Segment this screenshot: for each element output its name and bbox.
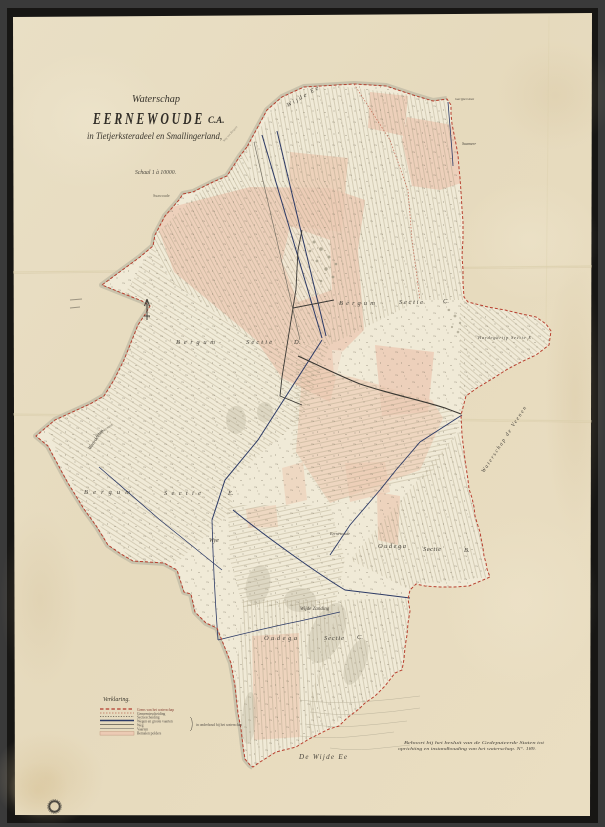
svg-text:Sectie: Sectie — [423, 546, 442, 553]
svg-text:B.: B. — [464, 547, 470, 554]
svg-text:Suameer: Suameer — [462, 141, 476, 146]
svg-text:Sectie: Sectie — [399, 299, 425, 306]
svg-text:Oudega: Oudega — [264, 635, 299, 642]
svg-text:Garijpersloot: Garijpersloot — [455, 97, 475, 101]
svg-text:Verklaring.: Verklaring. — [103, 697, 130, 703]
svg-text:Oudega: Oudega — [378, 543, 407, 550]
svg-text:Sectie: Sectie — [164, 490, 204, 497]
svg-text:in onderhoud bij het waterscha: in onderhoud bij het waterschap — [196, 723, 242, 727]
svg-text:Suawoude: Suawoude — [153, 193, 170, 198]
svg-text:E.: E. — [227, 490, 234, 497]
svg-text:Sectie: Sectie — [246, 339, 274, 346]
svg-text:C.: C. — [443, 298, 449, 305]
svg-text:Eernewoude: Eernewoude — [329, 531, 350, 536]
svg-text:Waterschap: Waterschap — [132, 93, 180, 105]
svg-text:Sectie: Sectie — [324, 635, 345, 642]
svg-text:Bergum: Bergum — [339, 300, 377, 307]
svg-text:in Tietjerksteradeel en Smalli: in Tietjerksteradeel en Smallingerland, — [87, 131, 222, 141]
svg-text:C.A.: C.A. — [208, 115, 225, 125]
svg-text:C.: C. — [357, 634, 363, 641]
svg-text:Bemalen polders: Bemalen polders — [137, 732, 162, 736]
svg-text:Hardegarijp Sectie E.: Hardegarijp Sectie E. — [477, 335, 533, 340]
svg-text:EERNEWOUDE: EERNEWOUDE — [92, 109, 205, 128]
svg-text:Schaal 1 à 10000.: Schaal 1 à 10000. — [135, 170, 176, 176]
svg-text:Behoort bij het besluit van de: Behoort bij het besluit van de Gedeputee… — [404, 740, 545, 745]
svg-text:De Wijde Ee: De Wijde Ee — [298, 753, 349, 761]
svg-text:Wye: Wye — [209, 538, 219, 544]
svg-text:oprichting en instandhouding v: oprichting en instandhouding van het wat… — [398, 746, 536, 751]
svg-text:Wijde Zanding: Wijde Zanding — [300, 607, 330, 612]
svg-text:D.: D. — [293, 339, 301, 346]
